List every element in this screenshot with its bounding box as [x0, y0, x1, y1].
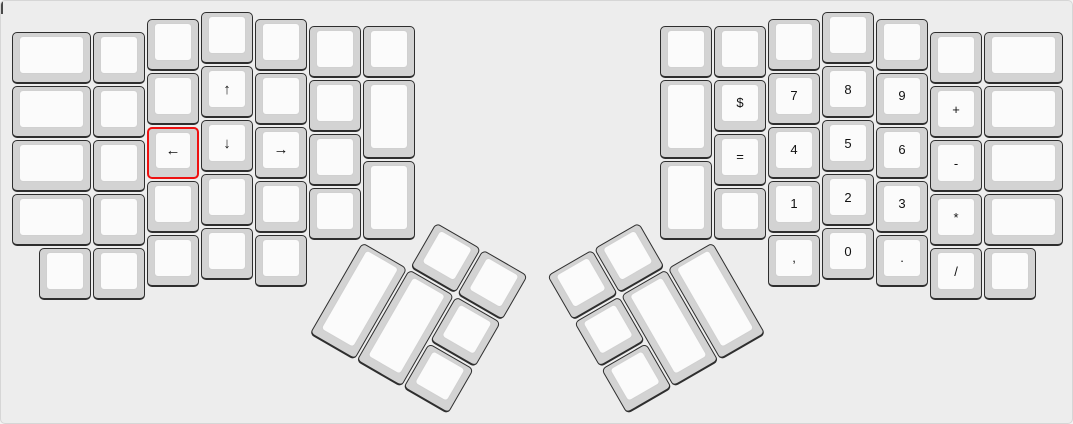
keycap-top	[667, 84, 705, 149]
keycap-top	[991, 198, 1056, 236]
keycap-top	[316, 30, 354, 68]
keycap-top: +	[937, 90, 975, 128]
keycap-base	[984, 194, 1063, 246]
key-label: 5	[844, 137, 851, 150]
key-blank[interactable]	[659, 160, 713, 241]
keycap-base	[201, 228, 253, 280]
key-blank[interactable]	[983, 193, 1064, 247]
keycap-top: ↓	[208, 124, 246, 162]
keycap-top	[555, 256, 607, 308]
keycap-base	[12, 86, 91, 138]
keycap-base	[309, 26, 361, 78]
key-blank[interactable]	[821, 11, 875, 65]
keycap-base	[714, 26, 766, 78]
keycap-top	[991, 90, 1056, 128]
keycap-top	[421, 229, 473, 281]
key-2[interactable]: 2	[821, 173, 875, 227]
key-blank[interactable]	[875, 18, 929, 72]
key-label: -	[954, 157, 958, 170]
keycap-base	[876, 19, 928, 71]
key-blank[interactable]	[254, 234, 308, 288]
keycap-top: 4	[775, 131, 813, 169]
key-minus[interactable]: -	[929, 139, 983, 193]
keycap-top	[100, 144, 138, 182]
keycap-base	[39, 248, 91, 300]
keycap-top	[154, 77, 192, 115]
keycap-top	[721, 192, 759, 230]
keycap-top	[208, 16, 246, 54]
keycap-top	[667, 165, 705, 230]
key-blank[interactable]	[92, 247, 146, 301]
keycap-base	[93, 194, 145, 246]
key-label: 3	[898, 197, 905, 210]
keycap-base	[12, 32, 91, 84]
key-blank[interactable]	[362, 79, 416, 160]
key-blank[interactable]	[254, 72, 308, 126]
keycap-top: ←	[155, 132, 191, 169]
key-left-arrow[interactable]: ←	[146, 126, 200, 180]
keycap-base	[660, 26, 712, 78]
key-blank[interactable]	[713, 25, 767, 79]
keycap-base	[822, 12, 874, 64]
key-blank[interactable]	[254, 180, 308, 234]
keycap-top: 7	[775, 77, 813, 115]
key-blank[interactable]	[308, 187, 362, 241]
keycap-base	[147, 235, 199, 287]
keycap-top	[609, 350, 661, 402]
keycap-top	[370, 165, 408, 230]
keycap-base	[984, 248, 1036, 300]
keycap-base	[93, 248, 145, 300]
keycap-top	[262, 239, 300, 277]
keycap-top	[208, 232, 246, 270]
keycap-base	[201, 174, 253, 226]
key-1[interactable]: 1	[767, 180, 821, 234]
keycap-base	[255, 181, 307, 233]
key-label: →	[274, 142, 289, 157]
key-label: 8	[844, 83, 851, 96]
keycap-base	[309, 80, 361, 132]
keycap-base	[201, 12, 253, 64]
key-blank[interactable]	[146, 72, 200, 126]
key-blank[interactable]	[11, 193, 92, 247]
key-blank[interactable]	[308, 133, 362, 187]
keycap-top	[721, 30, 759, 68]
keycap-base: 0	[822, 228, 874, 280]
keycap-top: 8	[829, 70, 867, 108]
key-label: 9	[898, 89, 905, 102]
key-blank[interactable]	[659, 25, 713, 79]
keycap-base	[714, 188, 766, 240]
keycap-base: =	[714, 134, 766, 186]
keycap-top	[100, 198, 138, 236]
key-blank[interactable]	[254, 18, 308, 72]
key-label: 4	[790, 143, 797, 156]
keycap-top: 2	[829, 178, 867, 216]
keycap-base	[984, 86, 1063, 138]
keycap-top	[316, 138, 354, 176]
keycap-top	[316, 192, 354, 230]
key-blank[interactable]	[983, 31, 1064, 85]
key-blank[interactable]	[146, 234, 200, 288]
keycap-base: 4	[768, 127, 820, 179]
key-label: ↓	[223, 136, 231, 151]
keycap-top: =	[721, 138, 759, 176]
key-blank[interactable]	[767, 18, 821, 72]
key-blank[interactable]	[308, 25, 362, 79]
key-label: ↑	[223, 82, 231, 97]
keycap-top	[19, 144, 84, 182]
keycap-top: 9	[883, 77, 921, 115]
key-equals[interactable]: =	[713, 133, 767, 187]
key-blank[interactable]	[92, 85, 146, 139]
keycap-base	[255, 19, 307, 71]
keycap-top: .	[883, 239, 921, 277]
keycap-top: 0	[829, 232, 867, 270]
keycap-top	[991, 252, 1029, 290]
keycap-base: $	[714, 80, 766, 132]
key-label: 2	[844, 191, 851, 204]
key-up-arrow[interactable]: ↑	[200, 65, 254, 119]
keycap-top	[775, 23, 813, 61]
keycap-top	[19, 36, 84, 74]
key-blank[interactable]	[200, 227, 254, 281]
keycap-top: -	[937, 144, 975, 182]
keycap-top	[883, 23, 921, 61]
key-blank[interactable]	[308, 79, 362, 133]
key-blank[interactable]	[659, 79, 713, 160]
keycap-top	[667, 30, 705, 68]
keycap-top: ,	[775, 239, 813, 277]
keycap-base	[93, 32, 145, 84]
key-label: ←	[166, 143, 181, 158]
key-label: +	[952, 103, 960, 116]
keycap-base: 8	[822, 66, 874, 118]
keycap-top: 1	[775, 185, 813, 223]
key-9[interactable]: 9	[875, 72, 929, 126]
key-blank[interactable]	[146, 180, 200, 234]
key-blank[interactable]	[200, 173, 254, 227]
keycap-top	[262, 77, 300, 115]
key-7[interactable]: 7	[767, 72, 821, 126]
key-blank[interactable]	[713, 187, 767, 241]
key-blank[interactable]	[983, 85, 1064, 139]
keycap-top	[262, 185, 300, 223]
key-blank[interactable]	[11, 85, 92, 139]
keycap-base	[93, 140, 145, 192]
key-blank[interactable]	[983, 139, 1064, 193]
key-blank[interactable]	[362, 160, 416, 241]
keycap-base: +	[930, 86, 982, 138]
key-label: *	[953, 211, 958, 224]
keycap-base: *	[930, 194, 982, 246]
key-comma[interactable]: ,	[767, 234, 821, 288]
keycap-base	[309, 188, 361, 240]
key-label: /	[954, 265, 958, 278]
keycap-top: *	[937, 198, 975, 236]
keycap-top	[100, 252, 138, 290]
keycap-base	[984, 140, 1063, 192]
keycap-base: ↑	[201, 66, 253, 118]
key-label: 0	[844, 245, 851, 258]
key-blank[interactable]	[11, 139, 92, 193]
keycap-top	[19, 198, 84, 236]
canvas-corner-mark	[1, 1, 3, 14]
keycap-base	[255, 235, 307, 287]
keycap-top: 3	[883, 185, 921, 223]
key-blank[interactable]	[146, 18, 200, 72]
key-right-arrow[interactable]: →	[254, 126, 308, 180]
key-slash[interactable]: /	[929, 247, 983, 301]
keycap-top	[46, 252, 84, 290]
key-3[interactable]: 3	[875, 180, 929, 234]
keycap-base	[255, 73, 307, 125]
keycap-top	[829, 16, 867, 54]
key-blank[interactable]	[362, 25, 416, 79]
key-blank[interactable]	[38, 247, 92, 301]
keycap-base: ,	[768, 235, 820, 287]
keycap-top	[370, 84, 408, 149]
keycap-base: 3	[876, 181, 928, 233]
key-blank[interactable]	[200, 11, 254, 65]
keycap-base: 1	[768, 181, 820, 233]
key-label: $	[736, 96, 743, 109]
keycap-base	[147, 73, 199, 125]
keycap-base: 6	[876, 127, 928, 179]
keycap-base: /	[930, 248, 982, 300]
key-label: =	[736, 150, 744, 163]
key-period[interactable]: .	[875, 234, 929, 288]
keycap-top	[208, 178, 246, 216]
keycap-top	[100, 90, 138, 128]
keycap-top	[991, 36, 1056, 74]
key-down-arrow[interactable]: ↓	[200, 119, 254, 173]
keycap-base: 7	[768, 73, 820, 125]
key-blank[interactable]	[92, 31, 146, 85]
key-5[interactable]: 5	[821, 119, 875, 173]
keycap-top	[602, 229, 654, 281]
keycap-base: .	[876, 235, 928, 287]
keycap-top	[582, 303, 634, 355]
key-plus[interactable]: +	[929, 85, 983, 139]
keycap-base: ↓	[201, 120, 253, 172]
keycap-base	[930, 32, 982, 84]
keyboard-canvas: ←↑↓→$=741,8520963.+-*/	[0, 0, 1073, 424]
key-8[interactable]: 8	[821, 65, 875, 119]
keycap-base	[147, 181, 199, 233]
keycap-top: →	[262, 131, 300, 169]
keycap-top: 6	[883, 131, 921, 169]
keycap-base: →	[255, 127, 307, 179]
keycap-top: $	[721, 84, 759, 122]
keycap-top	[316, 84, 354, 122]
key-0[interactable]: 0	[821, 227, 875, 281]
keycap-base	[984, 32, 1063, 84]
key-blank[interactable]	[11, 31, 92, 85]
keycap-top: /	[937, 252, 975, 290]
keycap-top	[100, 36, 138, 74]
keycap-base	[309, 134, 361, 186]
key-blank[interactable]	[983, 247, 1037, 301]
key-asterisk[interactable]: *	[929, 193, 983, 247]
key-blank[interactable]	[92, 193, 146, 247]
key-blank[interactable]	[929, 31, 983, 85]
keycap-top	[154, 239, 192, 277]
keycap-base	[12, 194, 91, 246]
keycap-base	[93, 86, 145, 138]
keycap-base: ←	[147, 127, 199, 179]
keycap-top	[370, 30, 408, 68]
keycap-base: 9	[876, 73, 928, 125]
key-label: ,	[792, 251, 796, 264]
keycap-top: ↑	[208, 70, 246, 108]
keycap-base	[660, 161, 712, 240]
keycap-top	[937, 36, 975, 74]
keycap-base: -	[930, 140, 982, 192]
key-label: 6	[898, 143, 905, 156]
keycap-base	[12, 140, 91, 192]
keycap-top: 5	[829, 124, 867, 162]
key-label: 1	[790, 197, 797, 210]
keycap-base	[363, 161, 415, 240]
keycap-base	[363, 80, 415, 159]
keycap-top	[154, 23, 192, 61]
keycap-base: 5	[822, 120, 874, 172]
key-6[interactable]: 6	[875, 126, 929, 180]
keycap-top	[468, 256, 520, 308]
keycap-base	[363, 26, 415, 78]
key-dollar[interactable]: $	[713, 79, 767, 133]
keycap-base	[660, 80, 712, 159]
keycap-base: 2	[822, 174, 874, 226]
keycap-top	[991, 144, 1056, 182]
key-blank[interactable]	[92, 139, 146, 193]
keycap-top	[262, 23, 300, 61]
key-label: .	[900, 251, 904, 264]
keycap-base	[147, 19, 199, 71]
key-4[interactable]: 4	[767, 126, 821, 180]
keycap-top	[19, 90, 84, 128]
key-label: 7	[790, 89, 797, 102]
keycap-base	[768, 19, 820, 71]
keycap-top	[154, 185, 192, 223]
